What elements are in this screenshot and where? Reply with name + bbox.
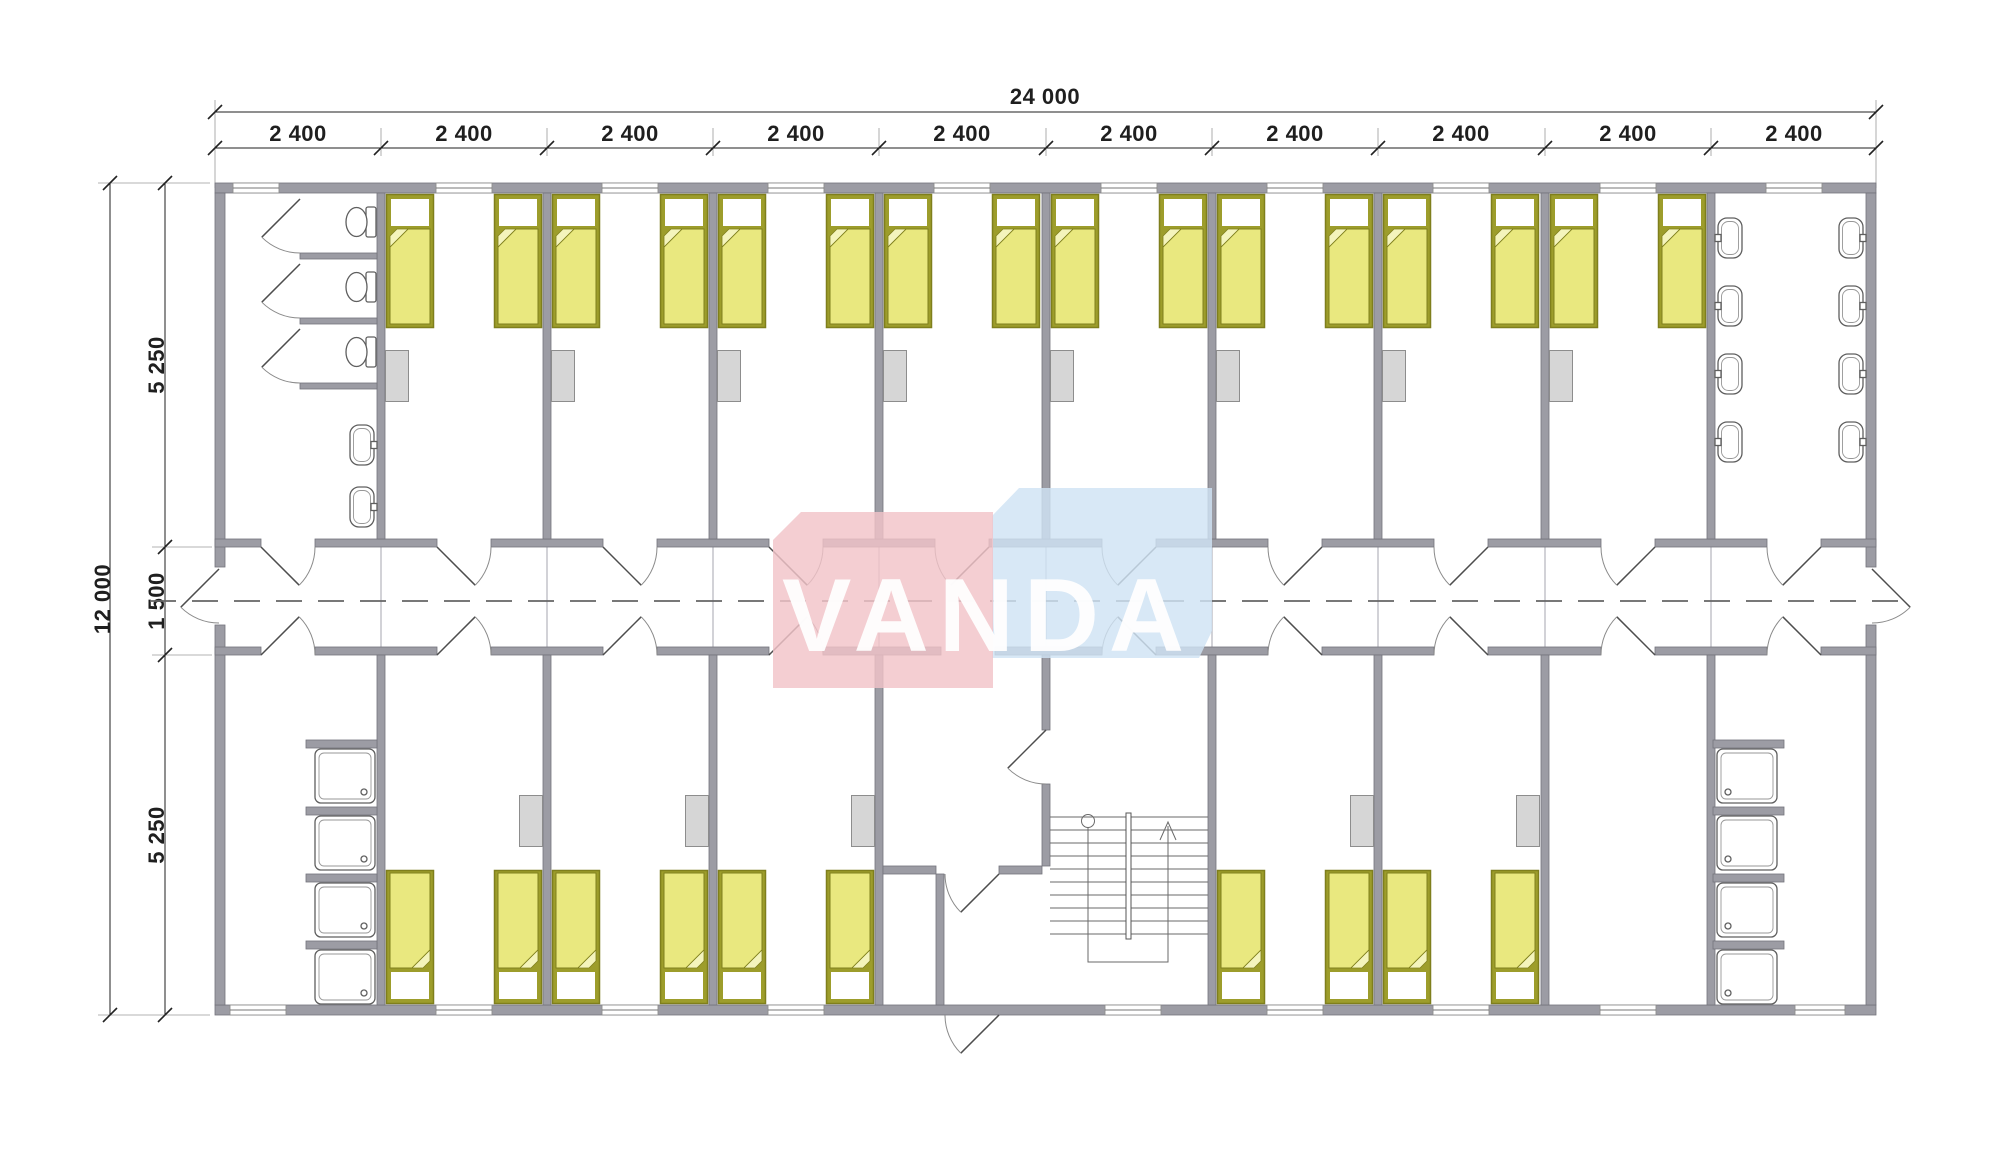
toilet <box>346 272 376 302</box>
sink <box>1839 286 1866 326</box>
wall-segment <box>1488 539 1601 547</box>
bed <box>1326 195 1373 328</box>
bed <box>1551 195 1598 328</box>
dim-top-segment: 2 400 <box>435 121 493 146</box>
wardrobe <box>1217 351 1240 402</box>
wash-basin <box>350 487 377 527</box>
bed <box>1492 871 1539 1004</box>
sink <box>1715 218 1742 258</box>
door <box>1268 547 1322 585</box>
door <box>1434 547 1488 585</box>
shower-tray <box>315 816 375 870</box>
entrance-door <box>945 1015 999 1053</box>
wall-segment <box>999 866 1042 874</box>
dimension-chain-top: 24 000 2 400 2 400 2 400 2 400 2 400 2 4… <box>208 84 1883 188</box>
wall-segment <box>657 539 769 547</box>
lobby-door <box>945 874 999 912</box>
sink <box>1839 422 1866 462</box>
stall-door <box>262 199 300 253</box>
window <box>230 1005 286 1015</box>
door <box>603 617 657 655</box>
wardrobe <box>852 796 875 847</box>
shower-partition <box>1713 874 1784 882</box>
wall-segment <box>377 193 385 539</box>
wall-segment <box>1866 625 1876 1005</box>
toilet <box>346 207 376 237</box>
dim-top-segment: 2 400 <box>1765 121 1823 146</box>
wardrobe <box>552 351 575 402</box>
door <box>1601 547 1655 585</box>
door <box>1434 617 1488 655</box>
stair-walkline-start <box>1082 815 1095 828</box>
wall-segment <box>1042 193 1050 539</box>
wardrobe <box>1383 351 1406 402</box>
stall-door <box>262 264 300 318</box>
shower-tray <box>315 950 375 1004</box>
shower-tray <box>1717 816 1777 870</box>
sink <box>1715 286 1742 326</box>
wall-segment <box>1821 539 1876 547</box>
shower-tray <box>1717 749 1777 803</box>
dim-top-segment: 2 400 <box>269 121 327 146</box>
door <box>437 547 491 585</box>
wall-segment <box>543 655 551 1005</box>
wall-segment <box>875 655 883 1005</box>
door <box>261 547 315 585</box>
wall-segment <box>1208 193 1216 539</box>
dim-left-total: 12 000 <box>90 564 115 634</box>
dim-top-total: 24 000 <box>1010 84 1080 109</box>
door <box>1767 547 1821 585</box>
bed <box>1384 195 1431 328</box>
bed <box>387 871 434 1004</box>
wall-segment <box>709 193 717 539</box>
shower-partition <box>1713 941 1784 949</box>
wall-segment <box>1374 655 1382 1005</box>
bed <box>387 195 434 328</box>
stair-hall-door <box>1008 730 1046 784</box>
wall-segment <box>875 193 883 539</box>
wall-segment <box>215 647 261 655</box>
wall-segment <box>491 539 603 547</box>
exit-door <box>181 569 219 623</box>
wardrobe <box>884 351 907 402</box>
bed <box>553 195 600 328</box>
window <box>1267 1005 1323 1015</box>
shower-partition <box>1713 807 1784 815</box>
window <box>768 183 824 193</box>
dim-left-segment: 5 250 <box>144 336 169 394</box>
floor-plan-page: 24 000 2 400 2 400 2 400 2 400 2 400 2 4… <box>0 0 2000 1175</box>
window <box>768 1005 824 1015</box>
dim-top-segment: 2 400 <box>767 121 825 146</box>
dimension-chain-left: 12 000 5 250 1 500 5 250 <box>90 176 212 1022</box>
window <box>1105 1005 1161 1015</box>
shower-tray <box>315 749 375 803</box>
door <box>437 617 491 655</box>
window <box>1795 1005 1845 1015</box>
wall-segment <box>883 866 936 874</box>
shower-partition <box>306 941 377 949</box>
toilet <box>346 337 376 367</box>
dim-top-segment: 2 400 <box>1266 121 1324 146</box>
window <box>1433 183 1489 193</box>
bed <box>1052 195 1099 328</box>
bed <box>1326 871 1373 1004</box>
sink <box>1839 354 1866 394</box>
window <box>602 1005 658 1015</box>
bed <box>719 871 766 1004</box>
bed <box>1218 871 1265 1004</box>
shower-partition <box>306 807 377 815</box>
wall-segment <box>1655 539 1767 547</box>
wall-segment <box>1541 655 1549 1005</box>
shower-tray <box>1717 883 1777 937</box>
door <box>603 547 657 585</box>
window <box>233 183 279 193</box>
stair-divider <box>1126 813 1131 939</box>
wall-segment <box>1866 193 1876 567</box>
door <box>1601 617 1655 655</box>
window <box>602 183 658 193</box>
bed <box>827 871 874 1004</box>
stall-partition <box>300 383 377 389</box>
wash-basin <box>350 425 377 465</box>
wall-segment <box>1655 647 1767 655</box>
wall-segment <box>315 539 437 547</box>
wall-segment <box>1707 655 1715 1005</box>
wall-segment <box>315 647 437 655</box>
wall-segment <box>936 874 944 1005</box>
wall-segment <box>709 655 717 1005</box>
watermark-text: VANDA <box>782 558 1194 674</box>
window <box>1600 183 1656 193</box>
wall-segment <box>1322 647 1434 655</box>
bed <box>719 195 766 328</box>
wardrobe <box>386 351 409 402</box>
wall-segment <box>1322 539 1434 547</box>
bed <box>1384 871 1431 1004</box>
window <box>1600 1005 1656 1015</box>
door <box>1767 617 1821 655</box>
window <box>436 1005 492 1015</box>
window <box>1267 183 1323 193</box>
bed <box>661 195 708 328</box>
bed <box>495 871 542 1004</box>
bed <box>1160 195 1207 328</box>
staircase <box>1050 813 1208 962</box>
wardrobe <box>1517 796 1540 847</box>
wardrobe <box>1351 796 1374 847</box>
wardrobe <box>1550 351 1573 402</box>
bed <box>885 195 932 328</box>
wall-segment <box>1821 647 1876 655</box>
wall-segment <box>1707 193 1715 539</box>
washroom-fixtures <box>1715 218 1866 462</box>
wall-segment <box>215 539 261 547</box>
bed <box>661 871 708 1004</box>
wall-segment <box>1541 193 1549 539</box>
wardrobe <box>1051 351 1074 402</box>
window <box>436 183 492 193</box>
stall-partition <box>300 253 377 259</box>
window <box>934 183 990 193</box>
floor-plan-drawing: 24 000 2 400 2 400 2 400 2 400 2 400 2 4… <box>0 0 2000 1175</box>
stall-partition <box>300 318 377 324</box>
wardrobe <box>520 796 543 847</box>
wall-segment <box>377 655 385 1005</box>
dim-top-segment: 2 400 <box>1432 121 1490 146</box>
sink <box>1715 354 1742 394</box>
bed <box>553 871 600 1004</box>
wall-segment <box>215 625 225 1005</box>
shower-partition <box>306 740 377 748</box>
wall-segment <box>657 647 769 655</box>
dim-top-segment: 2 400 <box>1100 121 1158 146</box>
wall-segment <box>1488 647 1601 655</box>
wall-segment <box>1374 193 1382 539</box>
stall-door <box>262 329 300 383</box>
wall-segment <box>1042 784 1050 866</box>
shower-partition <box>1713 740 1784 748</box>
window <box>1433 1005 1489 1015</box>
window <box>1101 183 1157 193</box>
wardrobe <box>718 351 741 402</box>
bed <box>1492 195 1539 328</box>
wall-segment <box>491 647 603 655</box>
exit-door <box>1872 569 1910 623</box>
window <box>1766 183 1822 193</box>
bed <box>1218 195 1265 328</box>
sink <box>1839 218 1866 258</box>
bed <box>1659 195 1706 328</box>
dim-top-segment: 2 400 <box>601 121 659 146</box>
shower-partition <box>306 874 377 882</box>
door <box>1268 617 1322 655</box>
wall-segment <box>1208 655 1216 1005</box>
shower-tray <box>1717 950 1777 1004</box>
bed <box>495 195 542 328</box>
door <box>261 617 315 655</box>
dim-top-segment: 2 400 <box>933 121 991 146</box>
wardrobe <box>686 796 709 847</box>
sink <box>1715 422 1742 462</box>
dim-left-segment: 5 250 <box>144 806 169 864</box>
watermark: VANDA <box>773 488 1212 688</box>
bed <box>827 195 874 328</box>
wall-segment <box>215 193 225 567</box>
dim-top-segment: 2 400 <box>1599 121 1657 146</box>
bed <box>993 195 1040 328</box>
shower-tray <box>315 883 375 937</box>
wall-segment <box>543 193 551 539</box>
